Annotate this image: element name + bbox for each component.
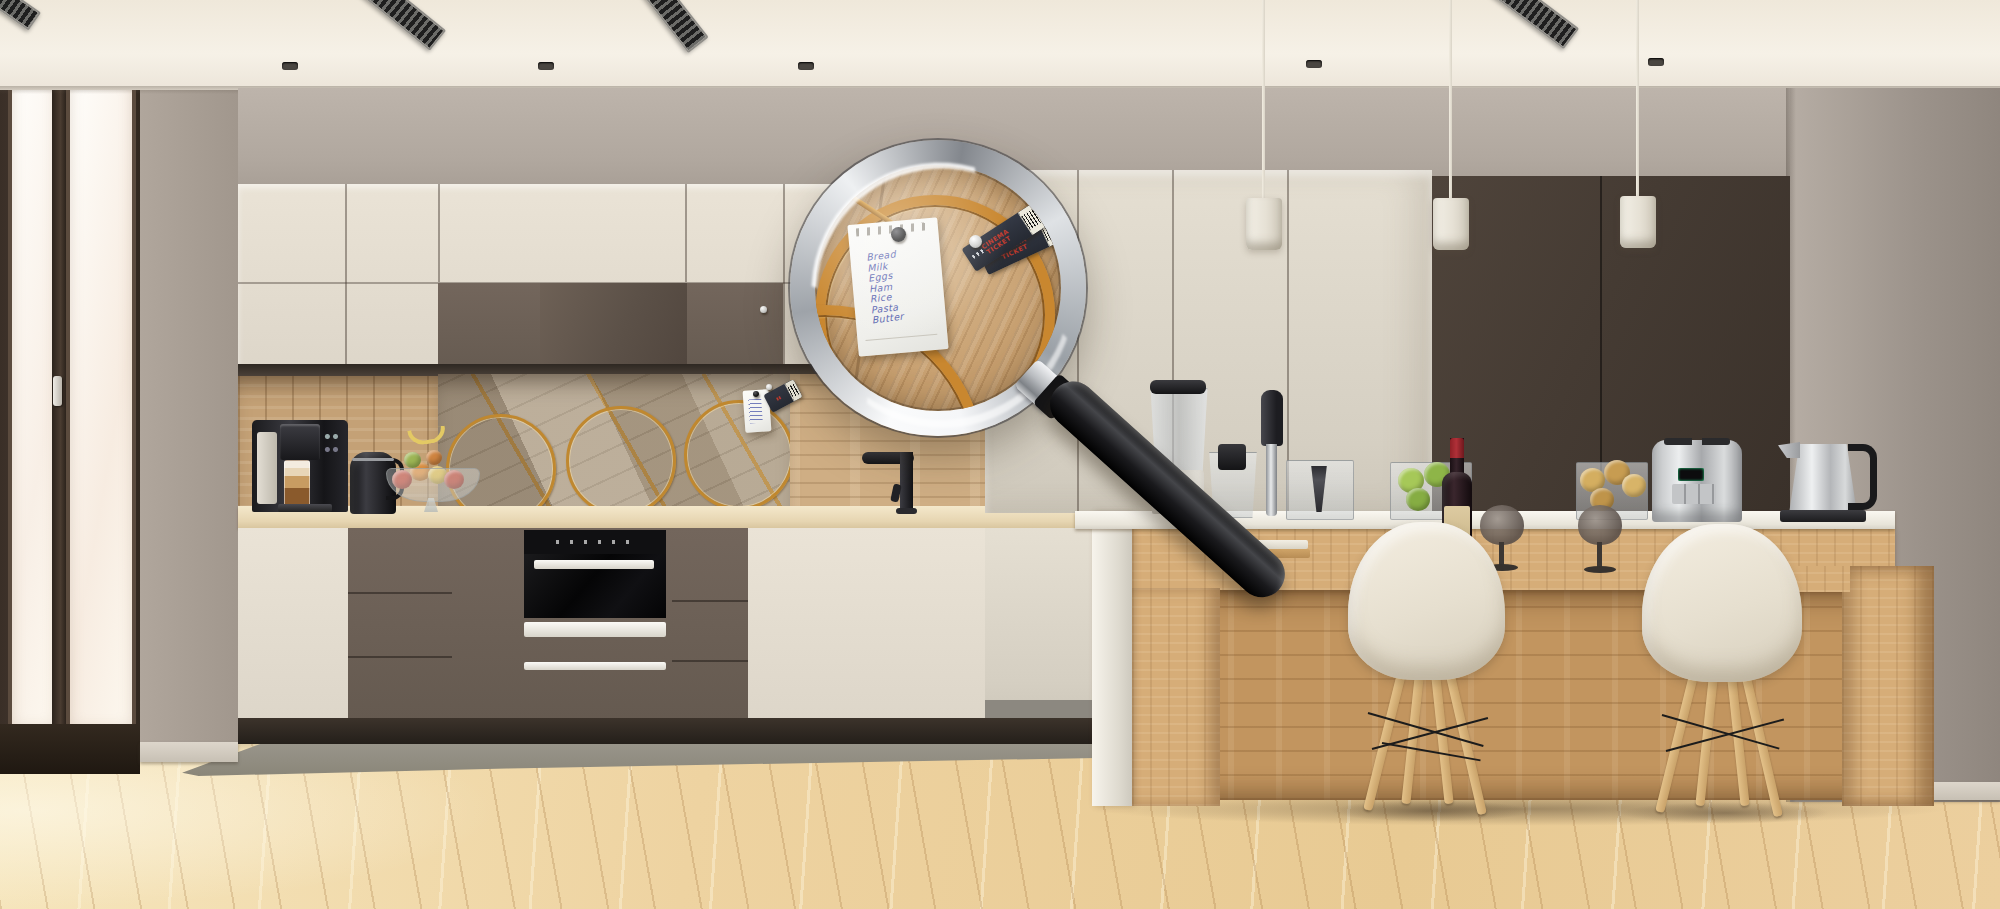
stick-blender-handle: [1261, 390, 1283, 446]
toaster-slots: [1664, 438, 1730, 445]
pendant-lamp: [1246, 198, 1282, 250]
chair-shell: [1642, 524, 1802, 682]
upper-cabinet-seam: [345, 184, 347, 372]
toaster-buttons: [1672, 484, 1716, 504]
upper-cabinet-seam: [438, 184, 440, 282]
drawer-line: [672, 600, 748, 602]
recessed-spotlight: [282, 62, 298, 70]
pendant-cord: [1262, 0, 1265, 200]
tall-cabinet-seam: [1077, 170, 1079, 513]
coffee-drip-tray: [278, 504, 332, 512]
base-drawers: [348, 528, 452, 720]
island-frame-left-leg: [1132, 588, 1220, 806]
island-recess-panel: [1132, 588, 1930, 800]
fruit-green: [404, 452, 421, 468]
chair-shadow: [1330, 800, 1530, 822]
base-end-cabinet: [985, 528, 1092, 720]
toaster: [1652, 440, 1742, 522]
kick-plinth: [238, 718, 1092, 744]
wine-glass-stem: [1597, 542, 1602, 568]
wine-bottle-cap: [1450, 438, 1464, 458]
faucet-riser: [900, 452, 913, 514]
stick-blender-shaft: [1266, 444, 1277, 516]
drawer-line: [348, 592, 452, 594]
backsplash-marquetry: [438, 374, 790, 510]
coffee-machine-buttons: [322, 430, 340, 456]
pendant-lamp: [1620, 196, 1656, 248]
baseboard-left: [140, 742, 238, 762]
wine-glass-stem: [1499, 542, 1504, 566]
steel-kettle-handle: [1848, 444, 1877, 510]
ceiling: [0, 0, 2000, 90]
glass-door-bottom-rail: [0, 724, 140, 774]
coffee-machine-tank: [257, 432, 277, 504]
chair-shell: [1348, 522, 1505, 680]
fruit-orange: [426, 450, 442, 465]
oven-drawer-front: [524, 622, 666, 637]
base-drawers: [452, 528, 518, 720]
note-pin-small: [753, 391, 759, 397]
kitchen-scene: ▮▮: [0, 0, 2000, 909]
pear: [1622, 474, 1646, 497]
wall-pin: [760, 306, 767, 313]
pendant-cord: [1636, 0, 1639, 198]
blender-lid: [1150, 380, 1206, 394]
oven-control-dots: [556, 540, 636, 544]
green-apple: [1406, 488, 1430, 511]
base-door-sink: [872, 528, 985, 720]
recessed-spotlight: [798, 62, 814, 70]
marquetry-gold-circle: [566, 406, 676, 510]
base-door: [748, 528, 872, 720]
marquetry-gold-circle: [684, 400, 790, 510]
drawer-line: [672, 660, 748, 662]
wine-glass: [1480, 505, 1524, 545]
chopper-pusher: [1218, 444, 1246, 470]
hood-cabinet-left-door: [438, 283, 540, 377]
island-frame-right-leg: [1842, 566, 1934, 806]
wine-glass: [1578, 505, 1622, 545]
upper-cabinet-seam: [783, 184, 785, 372]
toaster-display: [1678, 468, 1704, 481]
oven-lower-strip: [524, 662, 666, 670]
wine-glass-foot: [1584, 566, 1616, 573]
pendant-lamp: [1433, 198, 1469, 250]
chair-shadow: [1620, 802, 1830, 824]
drawer-line: [348, 656, 452, 658]
black-kettle-band: [352, 458, 394, 461]
recessed-spotlight: [1306, 60, 1322, 68]
base-end-grey-strip: [985, 700, 1092, 720]
hood-cabinet-right-door: [687, 283, 783, 377]
recessed-spotlight: [538, 62, 554, 70]
ticket-pin-small: [766, 384, 772, 390]
upper-cabinet-seam: [685, 184, 687, 282]
pendant-cord: [1449, 0, 1452, 200]
ticket-label-small: ▮▮: [767, 391, 790, 406]
extractor-hood-cabinet: [540, 283, 687, 367]
note-scribble: [748, 399, 763, 424]
recessed-spotlight: [1648, 58, 1664, 66]
faucet-base: [896, 508, 917, 514]
base-door: [238, 528, 348, 720]
door-handle: [53, 376, 62, 406]
coffee-machine-head: [280, 424, 320, 460]
glass-door-pane-right: [66, 76, 136, 732]
wall-left: [140, 88, 238, 758]
steel-kettle-base: [1780, 510, 1866, 522]
oven-handle: [534, 560, 654, 569]
island-waterfall-panel: [1092, 512, 1132, 806]
base-drawers: [672, 528, 748, 720]
